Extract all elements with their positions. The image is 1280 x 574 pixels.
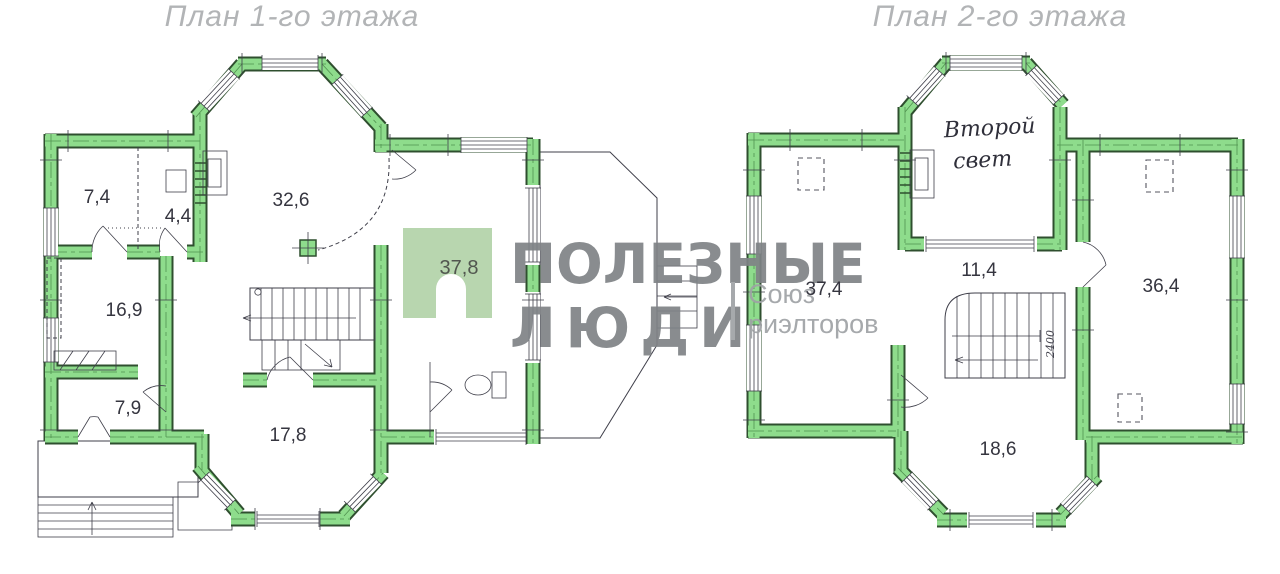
floor1-title: План 1-го этажа bbox=[165, 0, 420, 33]
floorplan-canvas: 2400 ПОЛЕЗНЫЕ ЛЮДИ Союз риэлторов План 1… bbox=[0, 0, 1280, 574]
watermark-divider bbox=[731, 282, 735, 340]
hatch-36-4-top bbox=[1146, 160, 1173, 192]
stair-dimension: 2400 bbox=[1044, 330, 1057, 359]
room-label-18-6: 18,6 bbox=[980, 439, 1017, 460]
watermark-brand-line2: ЛЮДИ bbox=[510, 296, 755, 360]
hatch-36-4-bottom bbox=[1118, 394, 1142, 422]
entry-arrow bbox=[88, 502, 96, 535]
watermark-union-line2: риэлторов bbox=[748, 309, 879, 339]
second-light-line2: свет bbox=[953, 146, 1013, 174]
staircase-floor2: 2400 bbox=[945, 293, 1065, 378]
room-label-4-4: 4,4 bbox=[165, 206, 192, 227]
hatch-37-4 bbox=[798, 158, 824, 190]
room-label-17-8: 17,8 bbox=[270, 425, 307, 446]
toilet bbox=[465, 372, 506, 398]
room-label-16-9: 16,9 bbox=[106, 300, 143, 321]
table-4-4 bbox=[166, 170, 186, 192]
room-label-7-4: 7,4 bbox=[84, 187, 111, 208]
closet-niche-2 bbox=[910, 150, 934, 198]
room-label-7-9: 7,9 bbox=[115, 398, 141, 419]
open-arch-boundary bbox=[318, 158, 389, 250]
room-label-37-4: 37,4 bbox=[806, 279, 843, 300]
second-light-line1: Второй bbox=[942, 114, 1036, 144]
room-label-36-4: 36,4 bbox=[1143, 276, 1180, 297]
staircase-floor1 bbox=[243, 288, 375, 370]
floor2-doors bbox=[901, 242, 1106, 407]
room-label-11-4: 11,4 bbox=[961, 260, 997, 281]
floorplan-screenshot: 2400 ПОЛЕЗНЫЕ ЛЮДИ Союз риэлторов План 1… bbox=[0, 0, 1280, 574]
floor2-title: План 2-го этажа bbox=[873, 0, 1128, 33]
room-label-37-8: 37,8 bbox=[440, 257, 479, 279]
floor1-doors bbox=[78, 150, 452, 437]
room-label-32-6: 32,6 bbox=[273, 190, 310, 211]
